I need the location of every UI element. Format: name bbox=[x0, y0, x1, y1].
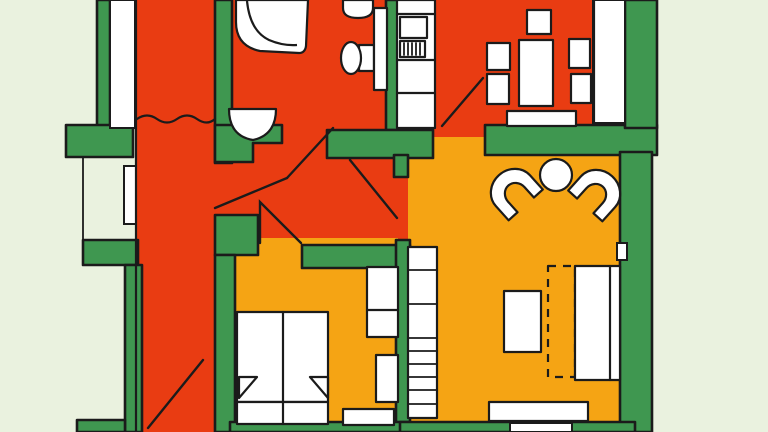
wall-bottom-left-band bbox=[77, 420, 125, 432]
wall-hall-stub bbox=[394, 155, 408, 177]
wall-shaft-bottom bbox=[83, 240, 138, 265]
toilet-bowl bbox=[341, 42, 361, 74]
bathroom-panel bbox=[374, 8, 387, 90]
wall-right-top bbox=[625, 0, 657, 128]
dining-chair-right-2 bbox=[571, 74, 591, 103]
side-table bbox=[540, 159, 572, 191]
sideboard bbox=[489, 402, 588, 421]
dining-table bbox=[519, 40, 553, 106]
wall-left-top bbox=[97, 0, 110, 130]
wall-bedroom-left bbox=[215, 255, 235, 432]
dining-chair-top bbox=[527, 10, 551, 34]
wall-left-lower bbox=[125, 265, 142, 432]
wall-left-mid bbox=[66, 125, 133, 157]
stairwell-floor bbox=[137, 0, 215, 432]
shelving-unit bbox=[408, 247, 437, 418]
dining-bench bbox=[507, 111, 576, 126]
wall-dining-living bbox=[485, 125, 657, 155]
dining-chair-left-1 bbox=[487, 43, 510, 70]
fridge bbox=[400, 17, 427, 38]
dining-chair-left-2 bbox=[487, 74, 509, 104]
right-window-strip bbox=[593, 0, 625, 123]
wall-bedroom-top bbox=[302, 245, 410, 268]
wall-right-main bbox=[620, 152, 652, 432]
wardrobe-lower bbox=[376, 355, 398, 402]
dresser bbox=[343, 409, 394, 425]
dining-chair-right-1 bbox=[569, 39, 590, 68]
shaft-door-opening bbox=[124, 166, 136, 224]
floor-plan-image bbox=[0, 0, 768, 432]
sofa bbox=[575, 266, 620, 380]
small-sink bbox=[343, 0, 373, 18]
left-window-strip bbox=[110, 0, 135, 128]
wall-hall-top-right bbox=[327, 130, 433, 158]
corner-bathtub bbox=[236, 0, 308, 53]
living-window-notch bbox=[617, 243, 627, 260]
coffee-table bbox=[504, 291, 541, 352]
wardrobe bbox=[367, 267, 398, 337]
floor-plan-canvas bbox=[0, 0, 768, 432]
wall-entry-lower bbox=[215, 215, 258, 255]
bottom-window-opening bbox=[510, 423, 572, 432]
